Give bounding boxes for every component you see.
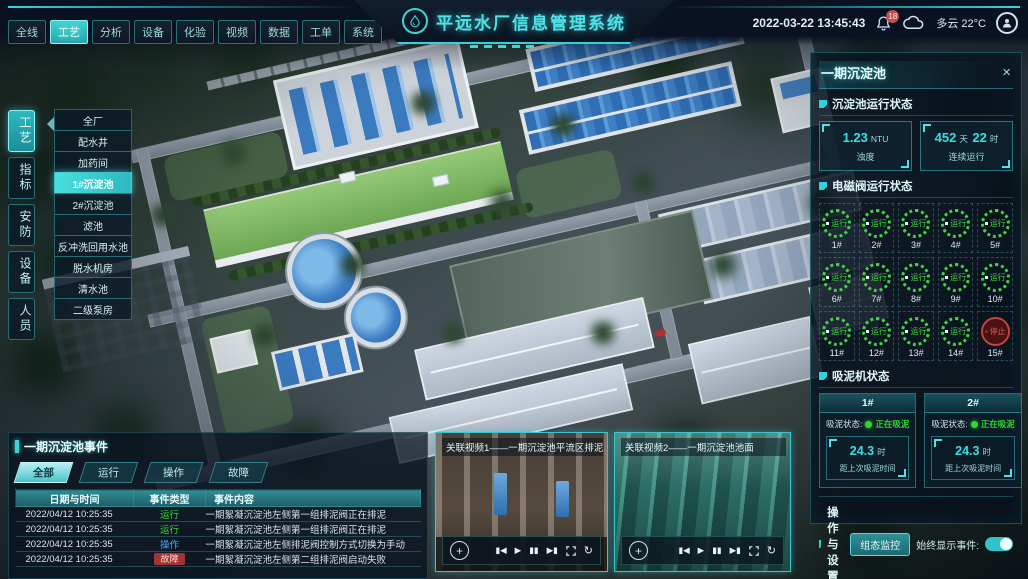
- section-marker-icon: [819, 100, 827, 108]
- scraper-caption: 距上次吸泥时间: [934, 463, 1011, 474]
- events-panel-title: 一期沉淀池事件: [24, 438, 108, 455]
- datetime-label: 2022-03-22 13:45:43: [753, 16, 866, 30]
- detail-panel-title: 一期沉淀池: [821, 63, 886, 82]
- event-row: 2022/04/12 10:25:35 操作 一期絮凝沉淀池左侧排泥阀控制方式切…: [16, 537, 421, 552]
- nav-tab-xitong[interactable]: 系统: [344, 20, 382, 44]
- nav-tab-shuju[interactable]: 数据: [260, 20, 298, 44]
- menu-item-lvchi[interactable]: 滤池: [54, 214, 132, 236]
- uptime-days: 452: [935, 130, 957, 145]
- status-dot-icon: [971, 421, 978, 428]
- scraper-status-label: 吸泥状态:: [931, 418, 967, 430]
- scraper-unit: 时: [983, 447, 992, 457]
- scraper-unit: 时: [877, 447, 886, 457]
- valve-ring-icon: 运行: [901, 209, 930, 238]
- cloud-icon: [902, 15, 926, 31]
- valve-13: 运行13#: [898, 311, 934, 361]
- always-show-events-label: 始终显示事件:: [916, 537, 979, 552]
- menu-item-erjibengfang[interactable]: 二级泵房: [54, 298, 132, 320]
- menu-item-fanchongxi[interactable]: 反冲洗回用水池: [54, 235, 132, 257]
- valve-5: 运行5#: [977, 203, 1013, 253]
- section-marker-icon: [819, 372, 827, 380]
- valve-9: 运行9#: [938, 257, 974, 307]
- valve-grid: 运行1# 运行2# 运行3# 运行4# 运行5# 运行6# 运行7# 运行8# …: [819, 203, 1013, 361]
- turbidity-label: 浊度: [856, 150, 874, 163]
- section-marker-icon: [819, 182, 827, 190]
- section-run-status: 沉淀池运行状态: [819, 96, 1013, 116]
- event-time: 2022/04/12 10:25:35: [16, 537, 134, 552]
- scraper-caption: 距上次吸泥时间: [829, 463, 906, 474]
- status-dot-icon: [865, 421, 872, 428]
- event-filters: 全部 运行 操作 故障: [17, 462, 421, 483]
- section-title: 吸泥机状态: [832, 368, 890, 384]
- event-type: 运行: [160, 510, 179, 521]
- title-frame: 平远水厂信息管理系统: [354, 0, 674, 44]
- play-icon[interactable]: ▶: [515, 545, 522, 556]
- valve-ring-icon: 运行: [981, 209, 1010, 238]
- turbidity-value: 1.23: [843, 130, 868, 145]
- turbidity-card: 1.23NTU 浊度: [819, 121, 912, 171]
- skip-forward-icon[interactable]: ▶▮: [730, 545, 741, 556]
- nav-tab-gongdan[interactable]: 工单: [302, 20, 340, 44]
- event-type: 故障: [154, 553, 184, 565]
- detail-panel: 一期沉淀池 × 沉淀池运行状态 1.23NTU 浊度 452天 22时 连续运行…: [810, 52, 1022, 524]
- ptz-pad-icon[interactable]: +: [629, 541, 648, 560]
- valve-ring-icon: 运行: [862, 317, 891, 346]
- run-status-cards: 1.23NTU 浊度 452天 22时 连续运行: [819, 121, 1013, 171]
- turbidity-unit: NTU: [871, 134, 888, 144]
- always-show-events-toggle[interactable]: [985, 537, 1013, 551]
- col-content: 事件内容: [206, 490, 421, 507]
- scada-monitor-button[interactable]: 组态监控: [850, 533, 910, 556]
- event-content: 一期絮凝沉淀池左侧第一组排泥阀正在排泥: [206, 507, 421, 522]
- valve-ring-icon: 运行: [901, 263, 930, 292]
- scraper-id: 2#: [925, 394, 1020, 413]
- scraper-value: 24.3: [850, 444, 874, 458]
- scraper-card-1: 1# 吸泥状态:正在吸泥 24.3时 距上次吸泥时间: [819, 393, 916, 488]
- event-content: 一期絮凝沉淀池左侧第二组排泥阀启动失败: [206, 552, 421, 567]
- detail-panel-header: 一期沉淀池 ×: [819, 61, 1013, 89]
- video-1-title: 关联视频1——一期沉淀池平流区排泥管廊: [442, 438, 603, 456]
- event-content: 一期絮凝沉淀池左侧第一组排泥阀正在排泥: [206, 522, 421, 537]
- valve-10: 运行10#: [977, 257, 1013, 307]
- event-time: 2022/04/12 10:25:35: [16, 552, 134, 567]
- menu-item-peishuijing[interactable]: 配水井: [54, 130, 132, 152]
- section-settings: 操作与设置 组态监控 始终显示事件:: [819, 496, 1013, 579]
- weather-label: 多云 22°C: [936, 15, 986, 31]
- fullscreen-icon[interactable]: [566, 546, 576, 556]
- event-content: 一期絮凝沉淀池左侧排泥阀控制方式切换为手动: [206, 537, 421, 552]
- valve-15: 停止15#: [977, 311, 1013, 361]
- scraper-card-2: 2# 吸泥状态:正在吸泥 24.3时 距上次吸泥时间: [924, 393, 1021, 488]
- close-icon[interactable]: ×: [1002, 65, 1011, 80]
- scraper-value-box: 24.3时 距上次吸泥时间: [931, 436, 1014, 480]
- scraper-cards: 1# 吸泥状态:正在吸泥 24.3时 距上次吸泥时间 2# 吸泥状态:正在吸泥 …: [819, 393, 1013, 488]
- menu-item-chendianchi-2[interactable]: 2#沉淀池: [54, 193, 132, 215]
- valve-ring-icon: 运行: [941, 317, 970, 346]
- fullscreen-icon[interactable]: [749, 546, 759, 556]
- event-row: 2022/04/12 10:25:35 运行 一期絮凝沉淀池左侧第一组排泥阀正在…: [16, 522, 421, 537]
- scraper-status-label: 吸泥状态:: [826, 418, 862, 430]
- menu-item-tuoshuijifang[interactable]: 脱水机房: [54, 256, 132, 278]
- user-avatar[interactable]: [996, 12, 1018, 34]
- process-menu: 全厂 配水井 加药间 1#沉淀池 2#沉淀池 滤池 反冲洗回用水池 脱水机房 清…: [54, 110, 132, 320]
- uptime-days-unit: 天: [959, 134, 968, 144]
- skip-back-icon[interactable]: ▮◀: [678, 545, 689, 556]
- scraper-id: 1#: [820, 394, 915, 413]
- main-nav: 全线 工艺 分析 设备 化验 视频 数据 工单 系统: [8, 20, 382, 44]
- nav-tab-gongyi[interactable]: 工艺: [50, 20, 88, 44]
- uptime-card: 452天 22时 连续运行: [920, 121, 1013, 171]
- top-deco-line: [670, 6, 1020, 8]
- event-type: 操作: [160, 540, 179, 551]
- scraper-value: 24.3: [955, 444, 979, 458]
- filter-run[interactable]: 运行: [79, 462, 139, 483]
- uptime-hours-unit: 时: [990, 134, 999, 144]
- left-tab-gongyi[interactable]: 工艺: [8, 110, 35, 152]
- section-title: 操作与设置: [827, 504, 842, 579]
- notification-bell[interactable]: 18: [875, 15, 892, 32]
- col-datetime: 日期与时间: [16, 490, 134, 507]
- nav-tab-shipin[interactable]: 视频: [218, 20, 256, 44]
- page-title: 平远水厂信息管理系统: [436, 9, 626, 34]
- section-title: 沉淀池运行状态: [832, 96, 913, 112]
- uptime-hours: 22: [972, 130, 986, 145]
- video-2-controls: + ▮◀ ▶ ▮▮ ▶▮ ↻: [621, 536, 784, 565]
- event-time: 2022/04/12 10:25:35: [16, 507, 134, 522]
- valve-ring-icon: 运行: [941, 209, 970, 238]
- event-row: 2022/04/12 10:25:35 故障 一期絮凝沉淀池左侧第二组排泥阀启动…: [16, 552, 421, 567]
- left-tab-anfang[interactable]: 安防: [8, 204, 35, 246]
- left-tab-shebei[interactable]: 设备: [8, 251, 35, 293]
- section-scrapers: 吸泥机状态: [819, 368, 1013, 388]
- events-panel: 一期沉淀池事件 全部 运行 操作 故障 日期与时间 事件类型 事件内容 2022…: [8, 432, 428, 579]
- nav-tab-shebei[interactable]: 设备: [134, 20, 172, 44]
- valve-1: 运行1#: [819, 203, 855, 253]
- section-valves: 电磁阀运行状态: [819, 178, 1013, 198]
- loop-icon[interactable]: ↻: [584, 544, 593, 557]
- nav-tab-huayan[interactable]: 化验: [176, 20, 214, 44]
- valve-8: 运行8#: [898, 257, 934, 307]
- top-deco-line: [8, 6, 358, 8]
- pause-icon[interactable]: ▮▮: [529, 545, 538, 556]
- valve-14: 运行14#: [938, 311, 974, 361]
- valve-ring-icon: 停止: [981, 317, 1010, 346]
- video-1-controls: + ▮◀ ▶ ▮▮ ▶▮ ↻: [442, 536, 601, 565]
- valve-12: 运行12#: [859, 311, 895, 361]
- section-title: 电磁阀运行状态: [832, 178, 913, 194]
- scraper-status: 正在吸泥: [981, 418, 1015, 430]
- toggle-knob: [1000, 538, 1012, 550]
- menu-item-chendianchi-1[interactable]: 1#沉淀池: [54, 172, 132, 194]
- title-marker-icon: [15, 440, 19, 453]
- menu-item-qingshuichi[interactable]: 清水池: [54, 277, 132, 299]
- event-time: 2022/04/12 10:25:35: [16, 522, 134, 537]
- event-row: 2022/04/12 10:25:35 运行 一期絮凝沉淀池左侧第一组排泥阀正在…: [16, 507, 421, 522]
- valve-ring-icon: 运行: [941, 263, 970, 292]
- menu-item-quanchang[interactable]: 全厂: [54, 109, 132, 131]
- water-drop-logo-icon: [402, 8, 428, 34]
- scraper-status: 正在吸泥: [875, 418, 909, 430]
- scraper-value-box: 24.3时 距上次吸泥时间: [826, 436, 909, 480]
- filter-fault[interactable]: 故障: [209, 462, 269, 483]
- skip-back-icon[interactable]: ▮◀: [495, 545, 506, 556]
- valve-ring-icon: 运行: [862, 263, 891, 292]
- valve-2: 运行2#: [859, 203, 895, 253]
- left-nav: 工艺 指标 安防 设备 人员: [8, 110, 35, 340]
- filter-operate[interactable]: 操作: [144, 462, 204, 483]
- valve-7: 运行7#: [859, 257, 895, 307]
- play-icon[interactable]: ▶: [698, 545, 705, 556]
- pause-icon[interactable]: ▮▮: [712, 545, 721, 556]
- filter-all[interactable]: 全部: [14, 462, 74, 483]
- top-right-info: 2022-03-22 13:45:43 18 多云 22°C: [753, 12, 1018, 34]
- nav-tab-quanxian[interactable]: 全线: [8, 20, 46, 44]
- valve-3: 运行3#: [898, 203, 934, 253]
- valve-ring-icon: 运行: [822, 263, 851, 292]
- video-panel-1: 关联视频1——一期沉淀池平流区排泥管廊 + ▮◀ ▶ ▮▮ ▶▮ ↻: [435, 432, 608, 572]
- valve-ring-icon: 运行: [981, 263, 1010, 292]
- valve-ring-icon: 运行: [822, 209, 851, 238]
- loop-icon[interactable]: ↻: [767, 544, 776, 557]
- uptime-label: 连续运行: [948, 150, 984, 163]
- events-table: 日期与时间 事件类型 事件内容 2022/04/12 10:25:35 运行 一…: [15, 489, 421, 567]
- event-type: 运行: [160, 525, 179, 536]
- title-dash-deco: [470, 45, 534, 48]
- menu-item-jiayaojian[interactable]: 加药间: [54, 151, 132, 173]
- valve-4: 运行4#: [938, 203, 974, 253]
- nav-tab-fenxi[interactable]: 分析: [92, 20, 130, 44]
- valve-ring-icon: 运行: [862, 209, 891, 238]
- section-marker-icon: [819, 540, 821, 548]
- menu-pointer-icon: [47, 117, 54, 131]
- valve-ring-icon: 运行: [901, 317, 930, 346]
- left-tab-zhibiao[interactable]: 指标: [8, 157, 35, 199]
- skip-forward-icon[interactable]: ▶▮: [547, 545, 558, 556]
- valve-11: 运行11#: [819, 311, 855, 361]
- video-panel-2: 关联视频2——一期沉淀池池面 + ▮◀ ▶ ▮▮ ▶▮ ↻: [614, 432, 791, 572]
- valve-6: 运行6#: [819, 257, 855, 307]
- left-tab-renyuan[interactable]: 人员: [8, 298, 35, 340]
- col-type: 事件类型: [134, 490, 206, 507]
- notification-badge: 18: [886, 10, 899, 23]
- valve-ring-icon: 运行: [822, 317, 851, 346]
- video-2-title: 关联视频2——一期沉淀池池面: [621, 438, 786, 456]
- top-bar: 全线 工艺 分析 设备 化验 视频 数据 工单 系统 平远水厂信息管理系统 20…: [0, 0, 1028, 45]
- app-root: 全线 工艺 分析 设备 化验 视频 数据 工单 系统 平远水厂信息管理系统 20…: [0, 0, 1028, 579]
- ptz-pad-icon[interactable]: +: [450, 541, 469, 560]
